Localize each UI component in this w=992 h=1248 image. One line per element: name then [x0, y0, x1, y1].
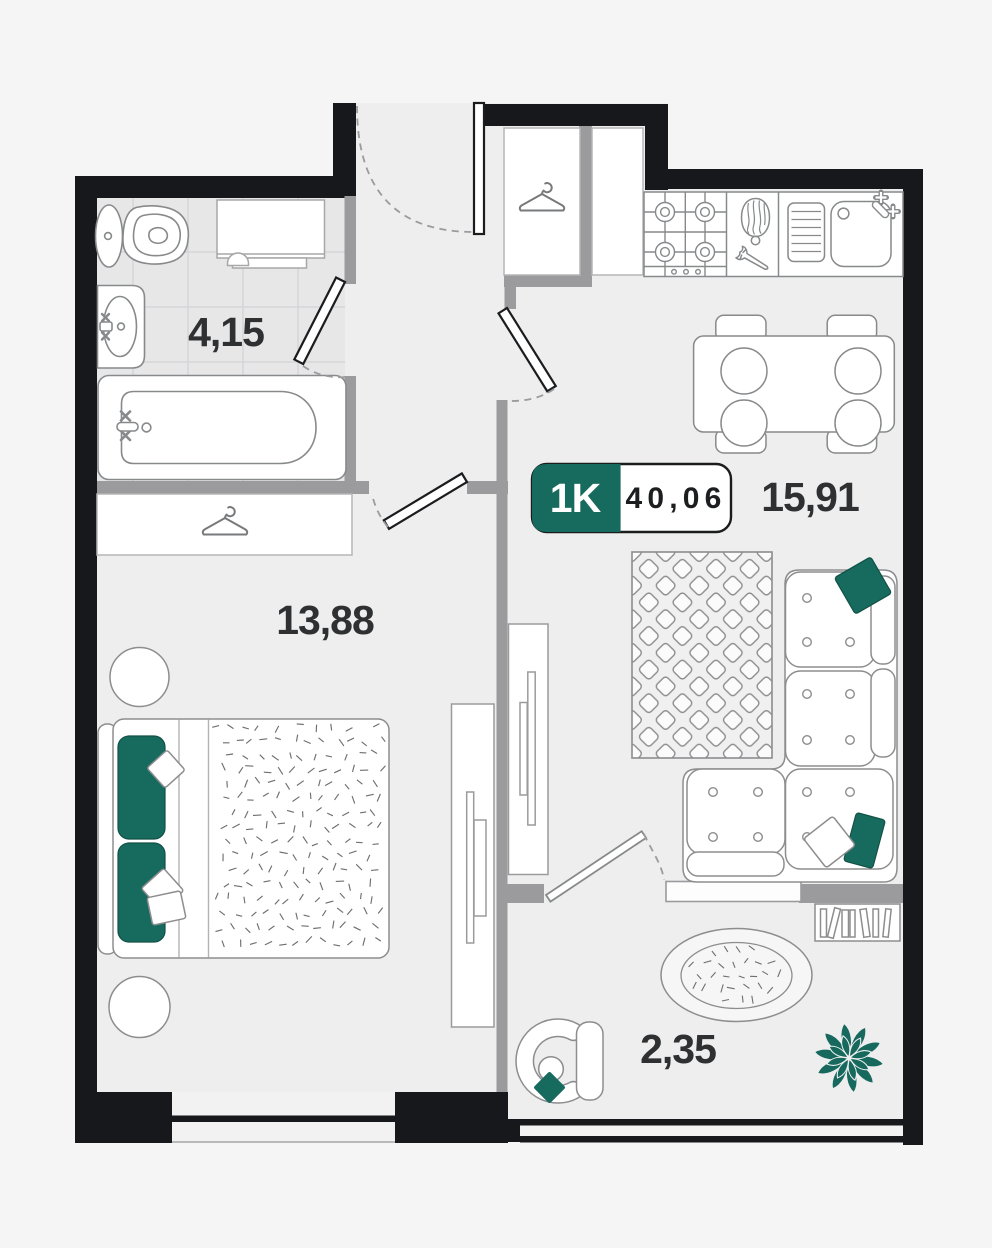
- svg-text:13,88: 13,88: [276, 597, 374, 643]
- svg-text:40,06: 40,06: [625, 482, 726, 515]
- svg-text:2,35: 2,35: [640, 1026, 716, 1072]
- svg-text:4,15: 4,15: [188, 309, 264, 355]
- svg-text:1K: 1K: [550, 475, 602, 521]
- svg-text:15,91: 15,91: [761, 474, 859, 520]
